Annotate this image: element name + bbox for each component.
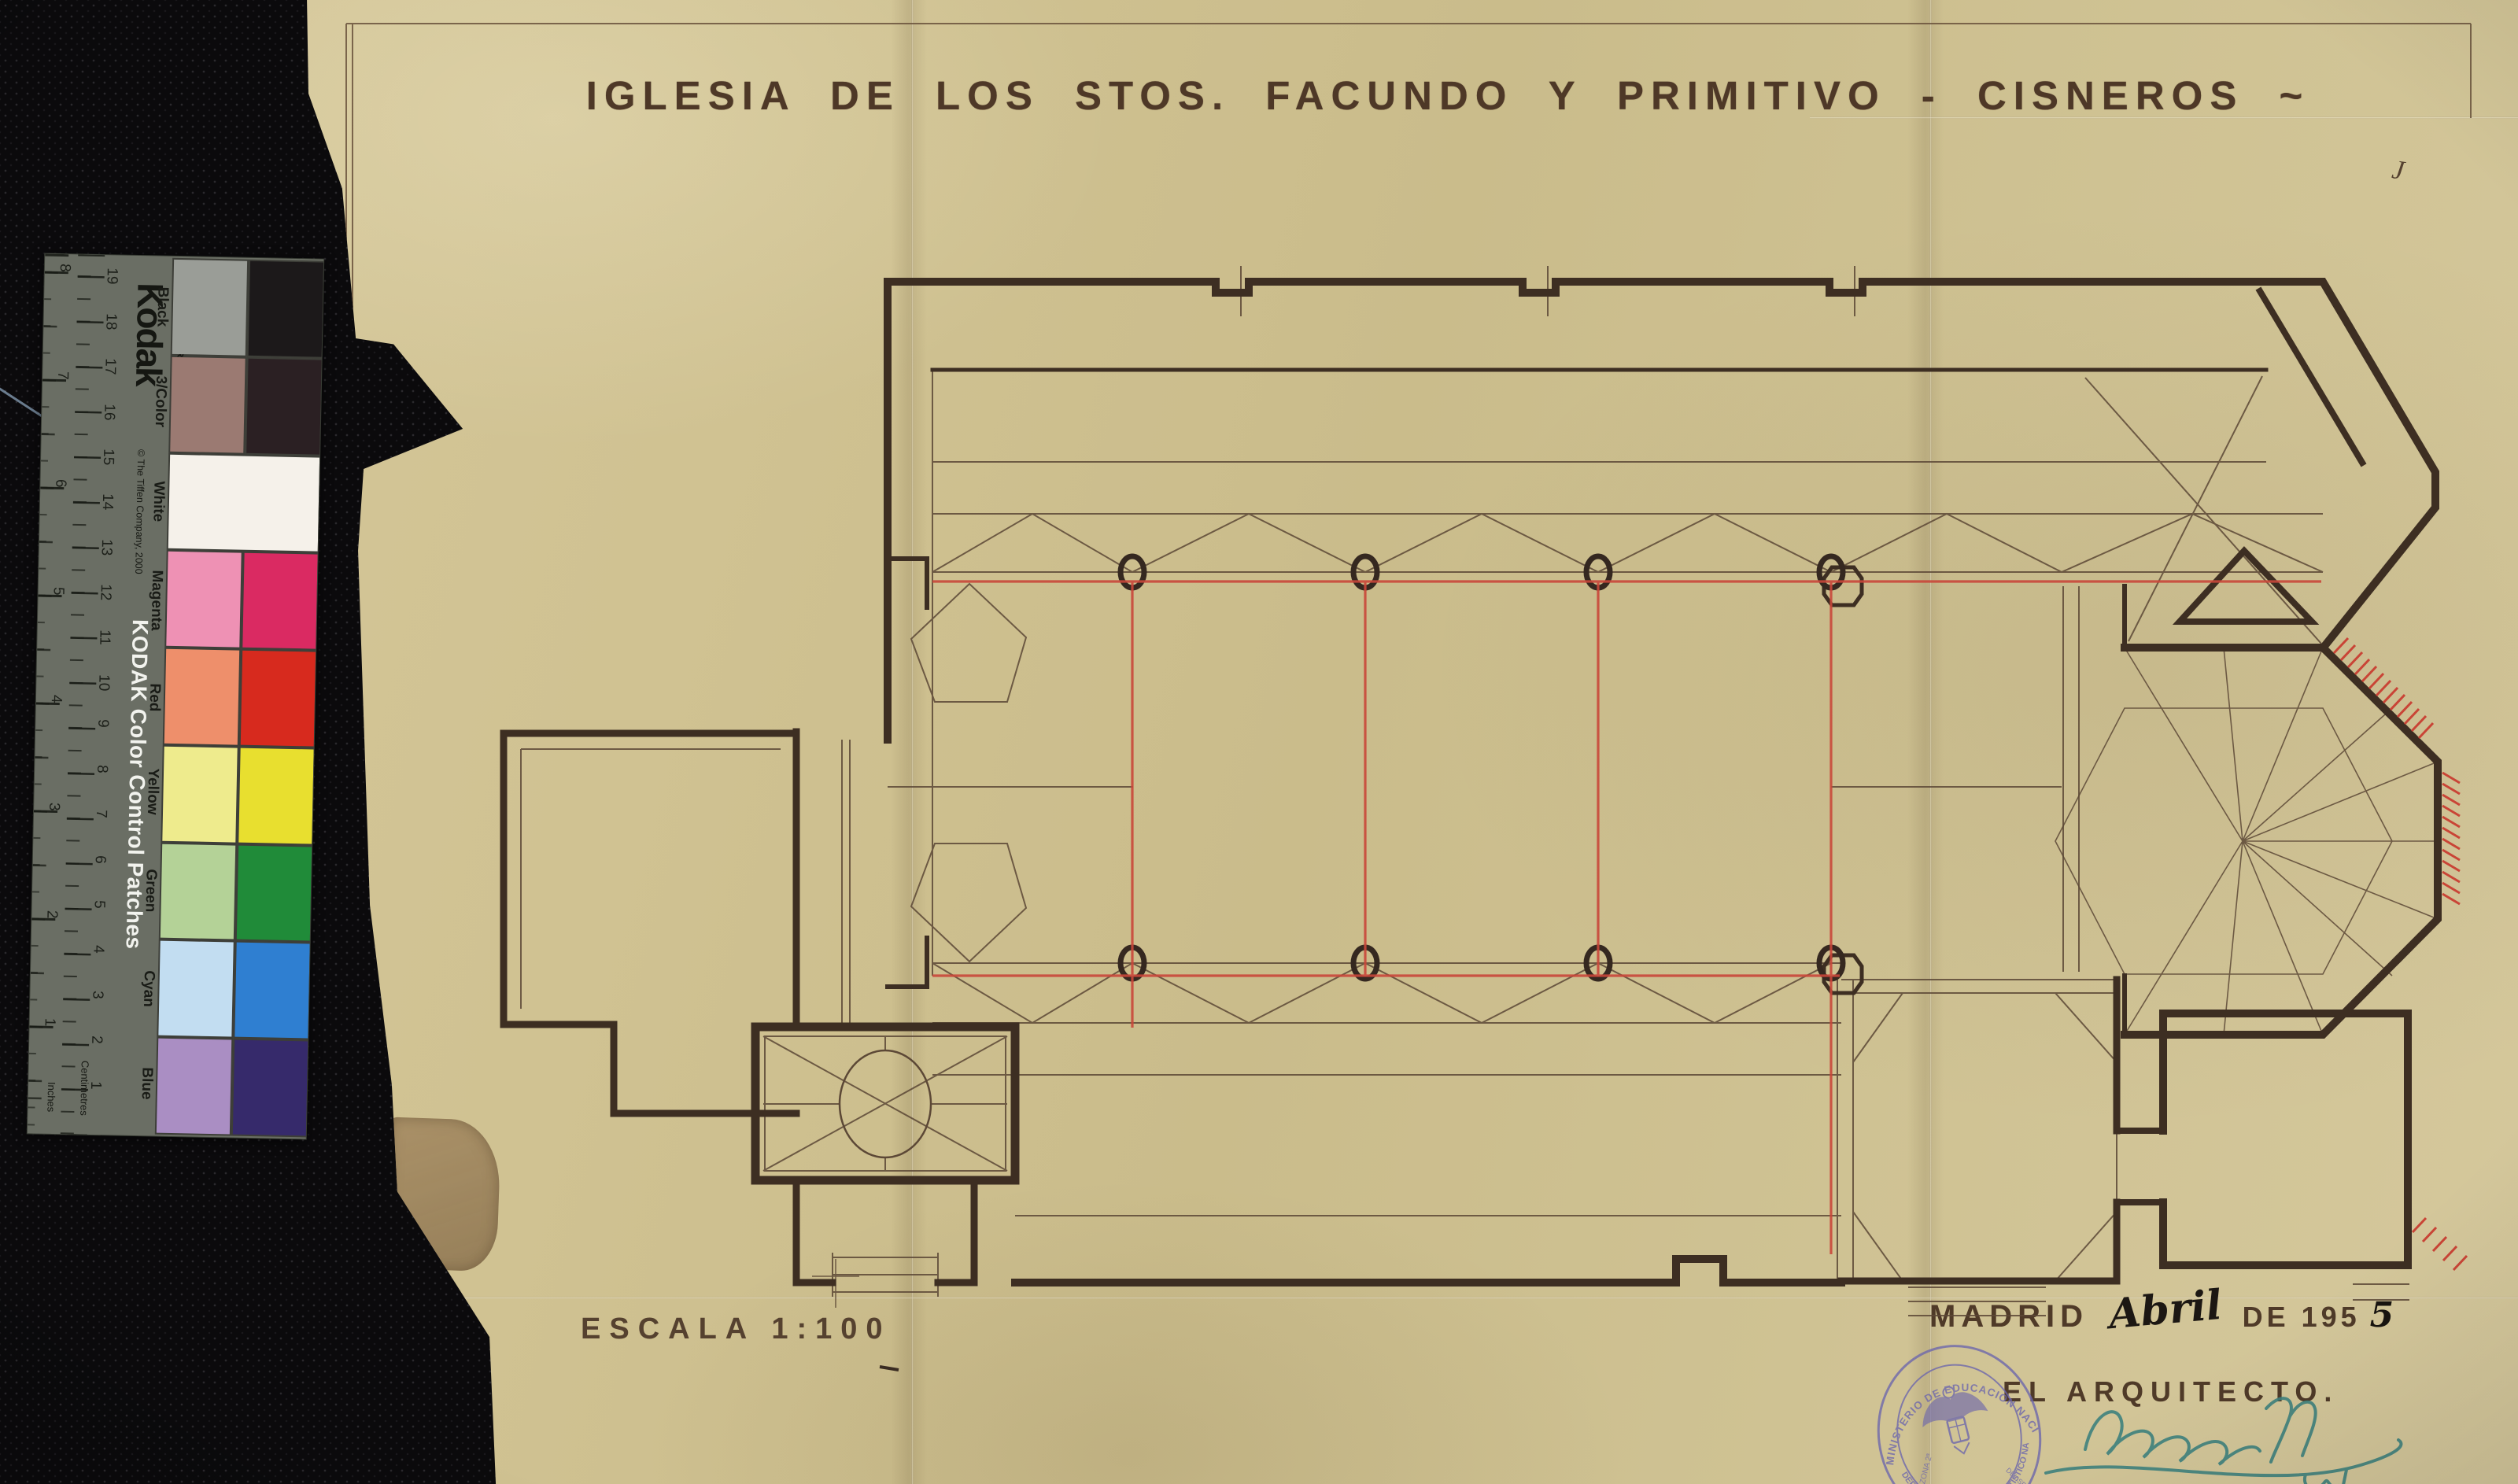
ruler-number: 12: [96, 584, 113, 601]
ruler-number: 6: [91, 855, 109, 864]
color-patches: [157, 260, 323, 1136]
red-axis-lines: [932, 581, 2321, 1254]
patch-label: Green: [141, 869, 159, 912]
copyright-label: © The Tiffen Company, 2000: [133, 449, 146, 574]
ruler-number: 2: [87, 1035, 105, 1044]
ruler-number: 9: [94, 719, 111, 728]
ruler-number: 15: [99, 449, 116, 466]
ruler-number: 8: [93, 765, 110, 773]
color-patch: [249, 261, 323, 357]
color-patch-row: [172, 260, 323, 357]
color-patch: [234, 943, 309, 1039]
ruler-number: 14: [98, 493, 116, 511]
color-patch-row: [166, 552, 317, 649]
patch-label: Cyan: [139, 970, 157, 1007]
color-patch: [170, 357, 245, 453]
color-patch: [237, 845, 312, 941]
color-patch-row: [161, 844, 312, 941]
color-patch: [157, 1039, 231, 1135]
ruler-number: 4: [47, 695, 65, 703]
architect-signature: [2046, 1398, 2401, 1484]
ruler-number: 1: [87, 1081, 104, 1090]
color-patch: [168, 454, 319, 552]
ruler-number: 11: [95, 629, 113, 645]
patch-label: Yellow: [143, 768, 161, 815]
color-patch-row: [164, 649, 316, 747]
drawing-sheet: IGLESIA DE LOS STOS. FACUNDO Y PRIMITIVO…: [0, 0, 2518, 1484]
ruler-number: 18: [102, 313, 119, 330]
color-patch: [158, 941, 233, 1037]
color-patch-row: [162, 747, 313, 844]
ruler-number: 19: [102, 268, 120, 285]
ruler-number: 4: [89, 945, 106, 954]
ruler-number: 8: [56, 264, 73, 272]
ruler-number: 16: [100, 404, 117, 421]
ruler-number: 6: [51, 479, 68, 488]
patch-label: Black: [153, 286, 171, 327]
color-patch-row: [158, 941, 309, 1039]
color-patch: [166, 552, 241, 648]
pen-dash: [880, 1367, 899, 1370]
ruler-number: 13: [98, 539, 115, 556]
patch-label: White: [149, 481, 167, 522]
ruler-number: 7: [54, 371, 71, 380]
patch-label: Magenta: [147, 570, 166, 631]
patch-label: Blue: [138, 1067, 156, 1100]
ruler-number: 2: [42, 910, 60, 919]
color-patch: [241, 651, 316, 747]
color-patch-row: [168, 454, 319, 552]
color-patch: [233, 1040, 308, 1136]
ruler-number: 1: [41, 1018, 58, 1027]
color-patch-row: [157, 1039, 308, 1136]
masonry-walls: [504, 282, 2438, 1283]
patch-label: Red: [146, 683, 164, 711]
nave-columns: [840, 556, 1843, 1157]
ruler-number: 5: [50, 587, 67, 596]
ruler-number: 3: [45, 803, 62, 811]
color-patch: [164, 649, 239, 745]
kodak-color-strip: Kodak LICENSED PRODUCT © The Tiffen Comp…: [28, 254, 323, 1139]
patch-label: 3/Color: [151, 375, 169, 427]
floor-plan-drawing: MINISTERIO DE EDUCACION NACIONAL DEFENSA…: [0, 0, 2518, 1484]
color-patch-row: [170, 357, 321, 455]
border-frame: [346, 24, 2471, 1416]
stamp-inner-left-text: ZONA 2ª: [1918, 1453, 1934, 1484]
ruler-number: 7: [92, 810, 109, 818]
ruler-number: 17: [101, 358, 118, 375]
ruler-number: 5: [90, 900, 108, 909]
color-patch: [238, 748, 313, 844]
inches-label: Inches: [45, 1082, 57, 1113]
color-patch: [242, 553, 317, 649]
thin-lines: [521, 266, 2409, 1316]
ruler-number: 3: [88, 991, 105, 999]
scan-background: IGLESIA DE LOS STOS. FACUNDO Y PRIMITIVO…: [0, 0, 2518, 1484]
color-patch: [161, 844, 235, 939]
color-patch: [246, 359, 321, 455]
color-patch: [172, 260, 247, 356]
color-patch: [162, 747, 237, 843]
ruler-number: 10: [94, 674, 112, 692]
